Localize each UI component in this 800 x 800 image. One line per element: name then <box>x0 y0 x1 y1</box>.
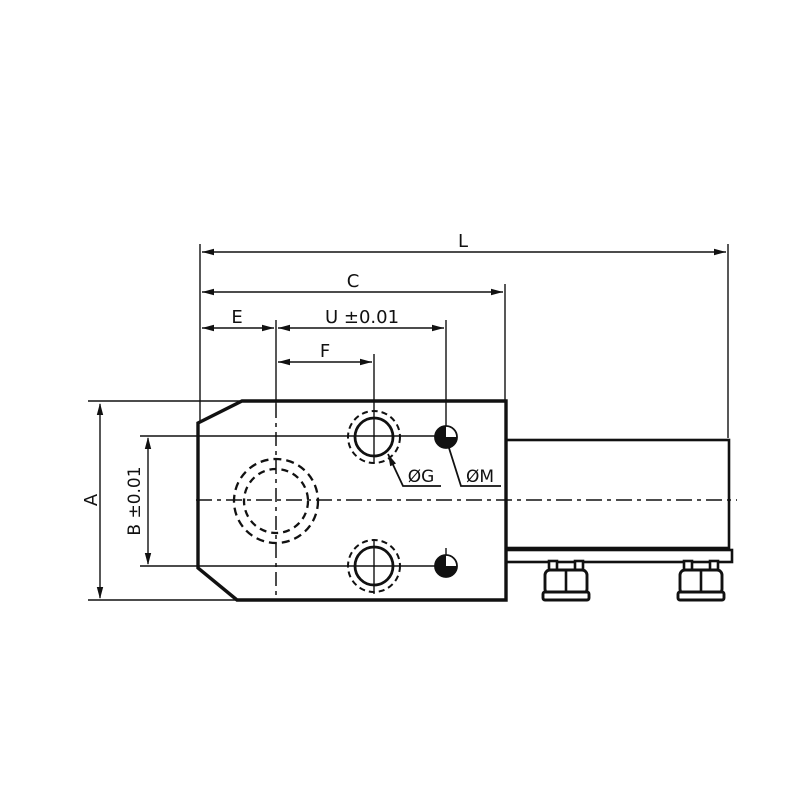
dim-label-E: E <box>231 307 242 328</box>
port-M-bottom-marker <box>435 555 457 577</box>
dim-label-L: L <box>458 231 468 252</box>
dim-label-B: B ±0.01 <box>125 466 145 535</box>
dim-label-F: F <box>320 341 330 362</box>
hole-label-M: ØM <box>466 467 494 487</box>
dim-label-A: A <box>81 493 102 506</box>
dim-label-U: U ±0.01 <box>325 307 399 328</box>
dim-label-C: C <box>347 271 360 292</box>
hole-label-G: ØG <box>408 467 435 487</box>
fitting-left-rim <box>543 592 589 600</box>
fitting-right-rim <box>678 592 724 600</box>
port-M-top-marker <box>435 426 457 448</box>
engineering-drawing: L C E U ±0.01 F A B ±0.01 ØG ØM <box>0 0 800 800</box>
